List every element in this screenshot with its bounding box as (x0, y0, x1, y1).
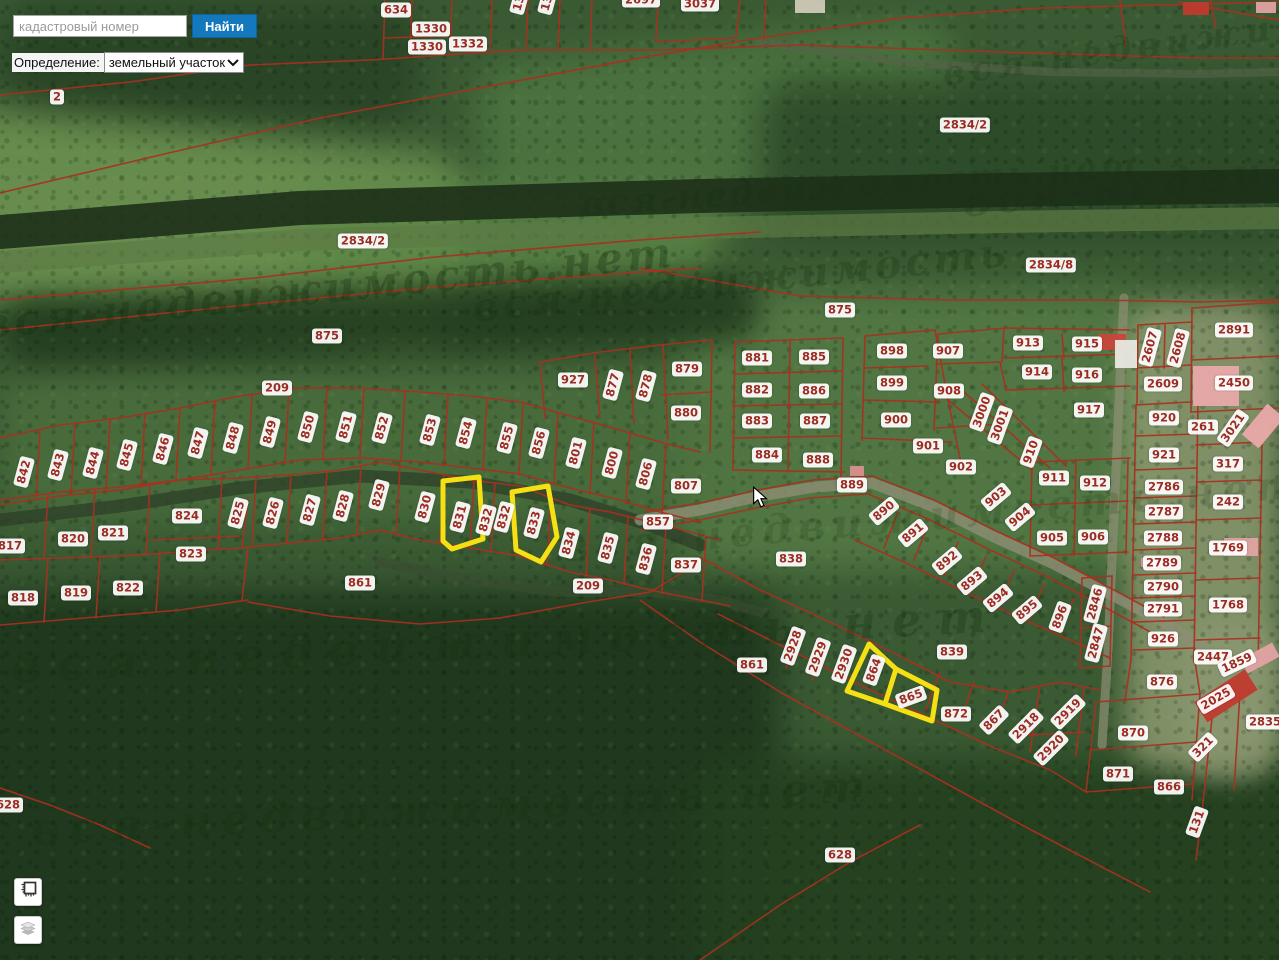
parcel-label[interactable]: 2608 (1166, 328, 1190, 369)
parcel-label[interactable]: 877 (602, 369, 624, 402)
parcel-label[interactable]: 900 (881, 413, 911, 428)
parcel-label[interactable]: 849 (259, 416, 281, 449)
parcel-label[interactable]: 885 (799, 350, 829, 365)
parcel-label[interactable]: 2918 (1007, 707, 1044, 744)
parcel-label[interactable]: 13 (537, 0, 557, 16)
parcel-label[interactable]: 901 (913, 439, 943, 454)
parcel-label[interactable]: 845 (116, 439, 138, 472)
parcel-label[interactable]: 2791 (1144, 602, 1182, 617)
parcel-label[interactable]: 634 (381, 3, 411, 18)
parcel-label[interactable]: 842 (13, 456, 35, 489)
parcel-label[interactable]: 3037 (681, 0, 719, 12)
parcel-label[interactable]: 321 (1187, 731, 1219, 763)
parcel-label[interactable]: 912 (1080, 476, 1110, 491)
definition-row: Определение: земельный участок (12, 52, 244, 73)
parcel-label[interactable]: 818 (8, 591, 38, 606)
parcel-label[interactable]: 2847 (1084, 623, 1108, 664)
parcel-label[interactable]: 896 (1048, 600, 1072, 633)
parcel-label[interactable]: 806 (635, 458, 657, 491)
parcel-label[interactable]: 827 (299, 494, 321, 527)
parcel-label[interactable]: 883 (742, 414, 772, 429)
parcel-label[interactable]: 1330 (408, 40, 446, 55)
measure-tool-button[interactable] (14, 878, 42, 906)
parcel-label[interactable]: 2920 (1032, 729, 1069, 766)
parcel-label[interactable]: 836 (635, 543, 657, 576)
parcel-label[interactable]: 846 (152, 433, 174, 466)
parcel-label[interactable]: 209 (262, 381, 292, 396)
parcel-label[interactable]: 855 (496, 422, 518, 455)
parcel-label[interactable]: 904 (1004, 502, 1037, 533)
parcel-label[interactable]: 1768 (1209, 598, 1247, 613)
parcel-labels-layer: 63413301330133213132697303722834/22834/2… (0, 0, 1279, 960)
parcel-label[interactable]: 920 (1149, 411, 1179, 426)
parcel-label[interactable]: 875 (312, 329, 342, 344)
parcel-label[interactable]: 2834/8 (1026, 258, 1076, 273)
parcel-label[interactable]: 856 (528, 427, 550, 460)
parcel-label[interactable]: 2787 (1145, 505, 1183, 520)
layers-icon (19, 919, 37, 942)
parcel-label[interactable]: 13 (509, 0, 529, 16)
parcel-label[interactable]: 914 (1022, 365, 1052, 380)
parcel-label[interactable]: 317 (1213, 457, 1243, 472)
parcel-label[interactable]: 899 (877, 376, 907, 391)
parcel-label[interactable]: 2609 (1144, 377, 1182, 392)
parcel-label[interactable]: 628 (825, 848, 855, 863)
parcel-label[interactable]: 2835 (1246, 715, 1279, 730)
parcel-label[interactable]: 821 (98, 526, 128, 541)
parcel-label[interactable]: 3021 (1216, 408, 1250, 448)
parcel-label[interactable]: 830 (414, 491, 436, 524)
parcel-label[interactable]: 261 (1188, 420, 1218, 435)
parcel-label[interactable]: 921 (1149, 448, 1179, 463)
parcel-label[interactable]: 2697 (622, 0, 660, 8)
parcel-label[interactable]: 628 (0, 798, 23, 813)
parcel-label[interactable]: 826 (262, 497, 284, 530)
find-button[interactable]: Найти (192, 14, 257, 38)
parcel-label[interactable]: 2929 (804, 637, 831, 678)
parcel-label[interactable]: 2834/2 (940, 118, 990, 133)
parcel-label[interactable]: 926 (1148, 632, 1178, 647)
parcel-label[interactable]: 3001 (986, 405, 1013, 446)
parcel-label[interactable]: 880 (671, 406, 701, 421)
parcel-label[interactable]: 888 (803, 453, 833, 468)
parcel-label[interactable]: 872 (941, 707, 971, 722)
parcel-label[interactable]: 905 (1037, 531, 1067, 546)
layers-tool-button[interactable] (14, 916, 42, 944)
parcel-label[interactable]: 1769 (1209, 541, 1247, 556)
parcel-label[interactable]: 861 (345, 576, 375, 591)
parcel-label[interactable]: 823 (176, 547, 206, 562)
parcel-label[interactable]: 844 (82, 447, 104, 480)
parcel-label[interactable]: 894 (982, 583, 1015, 614)
parcel-label[interactable]: 2025 (1196, 683, 1236, 715)
parcel-label[interactable]: 2834/2 (338, 234, 388, 249)
definition-select[interactable]: земельный участок (104, 52, 244, 73)
parcel-label[interactable]: 2607 (1138, 327, 1162, 368)
parcel-label[interactable]: 848 (222, 422, 244, 455)
parcel-label[interactable]: 837 (671, 558, 701, 573)
parcel-label[interactable]: 2846 (1083, 584, 1107, 625)
parcel-label[interactable]: 853 (419, 414, 441, 447)
parcel-label[interactable]: 828 (332, 490, 354, 523)
parcel-label[interactable]: 864 (862, 653, 886, 686)
parcel-label[interactable]: 2930 (830, 644, 857, 685)
parcel-label[interactable]: 878 (635, 370, 657, 403)
parcel-label[interactable]: 887 (800, 414, 830, 429)
parcel-label[interactable]: 824 (172, 509, 202, 524)
parcel-label[interactable]: 242 (1213, 495, 1243, 510)
parcel-label[interactable]: 852 (371, 412, 393, 445)
cadastral-map-viewport: вся-недвижимость.нетвся-недвижимостьвся-… (0, 0, 1279, 960)
definition-label: Определение: (12, 53, 104, 72)
parcel-label[interactable]: 851 (335, 411, 357, 444)
parcel-label[interactable]: 903 (980, 482, 1013, 513)
parcel-label[interactable]: 131 (1185, 805, 1209, 838)
parcel-label[interactable]: 2450 (1215, 376, 1253, 391)
parcel-label[interactable]: 854 (455, 417, 477, 450)
parcel-label[interactable]: 831 (449, 501, 471, 534)
parcel-label[interactable]: 889 (837, 478, 867, 493)
parcel-label[interactable]: 913 (1013, 336, 1043, 351)
parcel-label[interactable]: 832 (493, 501, 515, 534)
parcel-label[interactable]: 867 (978, 704, 1010, 736)
parcel-label[interactable]: 891 (897, 518, 930, 549)
parcel-label[interactable]: 832 (475, 504, 497, 537)
parcel-label[interactable]: 819 (61, 586, 91, 601)
parcel-label[interactable]: 1332 (449, 37, 487, 52)
parcel-label[interactable]: 886 (799, 384, 829, 399)
parcel-label[interactable]: 865 (894, 685, 927, 709)
parcel-label[interactable]: 927 (558, 373, 588, 388)
parcel-label[interactable]: 861 (737, 658, 767, 673)
parcel-label[interactable]: 2790 (1144, 580, 1182, 595)
plan-measure-icon (20, 881, 37, 903)
parcel-label[interactable]: 908 (934, 384, 964, 399)
parcel-label[interactable]: 898 (877, 344, 907, 359)
parcel-label[interactable]: 1330 (412, 22, 450, 37)
parcel-label[interactable]: 807 (671, 479, 701, 494)
parcel-label[interactable]: 838 (776, 552, 806, 567)
parcel-label[interactable]: 2891 (1215, 323, 1253, 338)
parcel-label[interactable]: 817 (0, 539, 25, 554)
parcel-label[interactable]: 890 (868, 496, 901, 527)
parcel-label[interactable]: 2 (50, 90, 64, 105)
parcel-label[interactable]: 822 (113, 581, 143, 596)
parcel-label[interactable]: 911 (1039, 471, 1069, 486)
parcel-label[interactable]: 866 (1154, 780, 1184, 795)
definition-value: земельный участок (109, 55, 225, 70)
parcel-label[interactable]: 833 (523, 507, 545, 540)
parcel-label[interactable]: 892 (931, 546, 964, 577)
parcel-label[interactable]: 2928 (779, 626, 806, 667)
search-panel: Найти (13, 14, 257, 38)
parcel-label[interactable]: 879 (672, 362, 702, 377)
parcel-label[interactable]: 834 (558, 527, 580, 560)
parcel-label[interactable]: 825 (227, 497, 249, 530)
parcel-label[interactable]: 847 (187, 427, 209, 460)
parcel-label[interactable]: 839 (937, 645, 967, 660)
parcel-label[interactable]: 915 (1072, 337, 1102, 352)
search-input[interactable] (13, 15, 187, 37)
parcel-label[interactable]: 871 (1103, 767, 1133, 782)
parcel-label[interactable]: 906 (1078, 530, 1108, 545)
parcel-label[interactable]: 902 (946, 460, 976, 475)
parcel-label[interactable]: 2788 (1144, 531, 1182, 546)
parcel-label[interactable]: 835 (597, 532, 619, 565)
parcel-label[interactable]: 910 (1019, 435, 1043, 468)
parcel-label[interactable]: 882 (742, 383, 772, 398)
parcel-label[interactable]: 917 (1074, 403, 1104, 418)
parcel-label[interactable]: 2919 (1049, 693, 1086, 730)
parcel-label[interactable]: 907 (933, 344, 963, 359)
parcel-label[interactable]: 881 (742, 351, 772, 366)
chevron-down-icon (227, 55, 239, 70)
parcel-label[interactable]: 850 (297, 411, 319, 444)
parcel-label[interactable]: 209 (573, 579, 603, 594)
parcel-label[interactable]: 893 (956, 566, 989, 597)
parcel-label[interactable]: 2789 (1143, 556, 1181, 571)
parcel-label[interactable]: 895 (1011, 595, 1044, 626)
parcel-label[interactable]: 829 (368, 479, 390, 512)
parcel-label[interactable]: 857 (643, 515, 673, 530)
parcel-label[interactable]: 2786 (1145, 480, 1183, 495)
parcel-label[interactable]: 801 (565, 437, 587, 470)
parcel-label[interactable]: 875 (825, 303, 855, 318)
parcel-label[interactable]: 820 (58, 532, 88, 547)
parcel-label[interactable]: 884 (752, 448, 782, 463)
parcel-label[interactable]: 916 (1072, 368, 1102, 383)
parcel-label[interactable]: 843 (47, 449, 69, 482)
parcel-label[interactable]: 870 (1118, 726, 1148, 741)
parcel-label[interactable]: 800 (601, 447, 623, 480)
parcel-label[interactable]: 876 (1147, 675, 1177, 690)
